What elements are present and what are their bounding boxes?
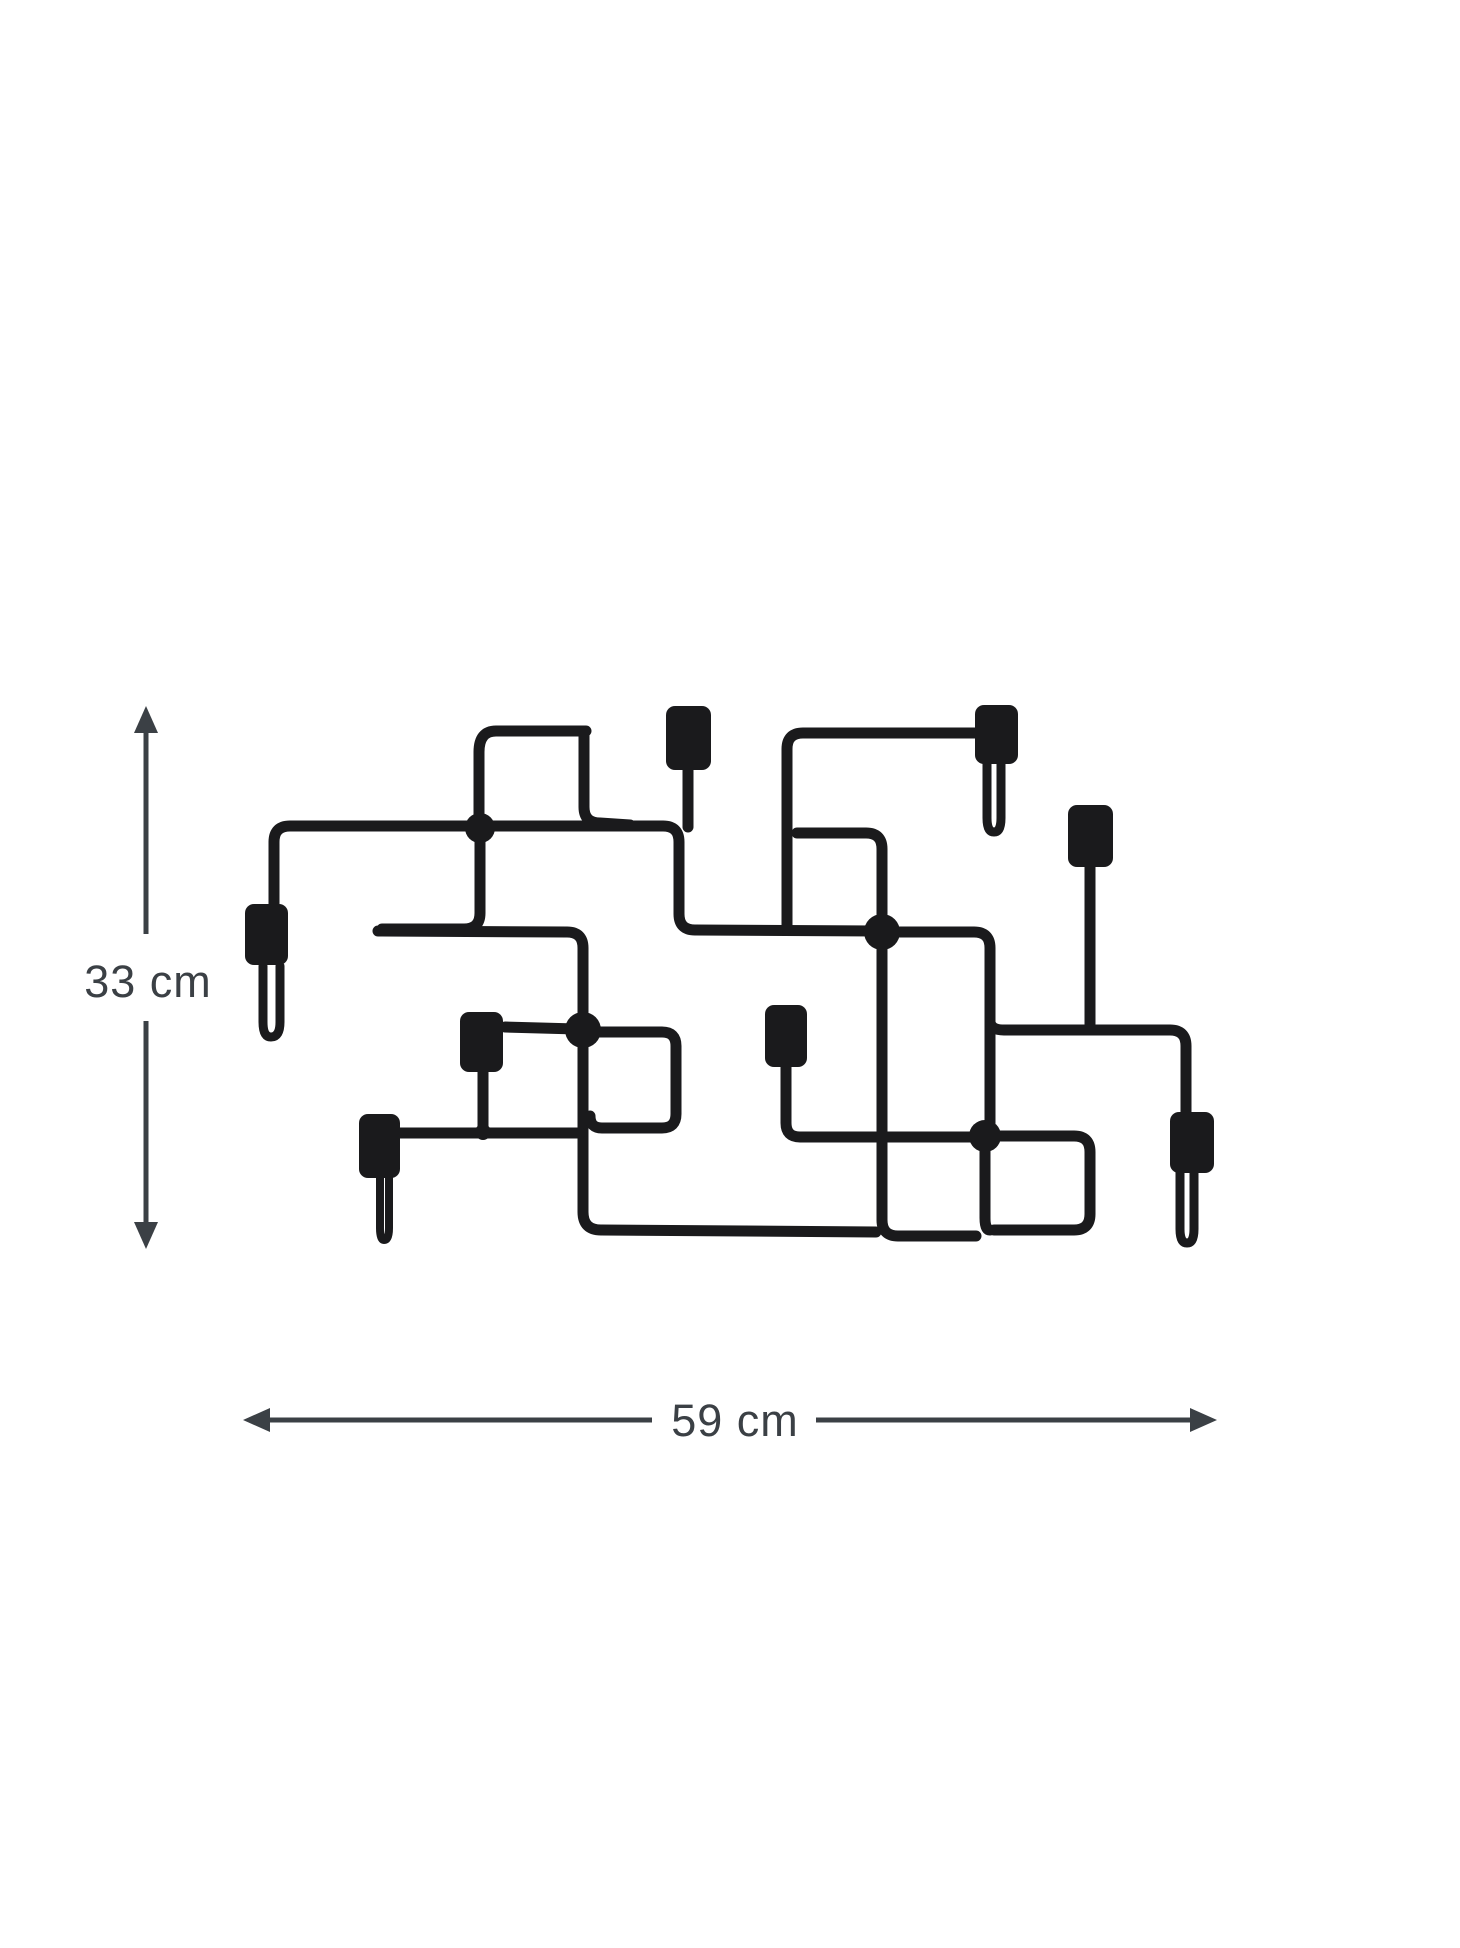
hook-pad bbox=[245, 904, 288, 965]
height-dimension-label: 33 cm bbox=[84, 956, 212, 1008]
wire-j1-up-loop bbox=[479, 731, 586, 830]
junction-dot bbox=[465, 813, 495, 843]
wire-j5-down bbox=[985, 1141, 990, 1230]
product-dimension-image: 33 cm 59 cm bbox=[0, 0, 1460, 1948]
weld-dot bbox=[475, 1124, 491, 1140]
hook-pad bbox=[765, 1005, 807, 1067]
wire-j2-square-top bbox=[797, 833, 882, 921]
coat-rack-hook-pads bbox=[245, 705, 1214, 1178]
hook-pad bbox=[460, 1012, 503, 1072]
coat-rack-diagram bbox=[0, 0, 1460, 1948]
wire-j5-right-loop bbox=[990, 1136, 1090, 1230]
wire-mid-to-j3 bbox=[378, 931, 583, 1022]
junction-dot bbox=[969, 1120, 1001, 1152]
hook-pad bbox=[1068, 805, 1113, 867]
hook-pad bbox=[359, 1114, 400, 1178]
wire-j2-down bbox=[882, 938, 976, 1236]
junction-dot bbox=[565, 1012, 601, 1048]
up-arrowhead-icon bbox=[134, 706, 158, 733]
junction-dot bbox=[864, 914, 900, 950]
wire-j2-to-j5 bbox=[888, 932, 990, 1128]
coat-rack-hook-loops bbox=[263, 763, 1194, 1243]
wire-j1-loop-drop bbox=[584, 734, 630, 825]
hook-loop-pad-d bbox=[263, 966, 280, 1037]
coat-rack-wires bbox=[274, 731, 1186, 1236]
hook-loop-pad-h bbox=[380, 1177, 389, 1240]
hook-loop-pad-b bbox=[987, 763, 1001, 832]
hook-pad bbox=[975, 705, 1018, 764]
left-arrowhead-icon bbox=[243, 1408, 270, 1432]
wire-j3-square-loop bbox=[589, 1032, 676, 1128]
coat-rack-junction-dots bbox=[465, 813, 1001, 1152]
width-dimension-label: 59 cm bbox=[671, 1395, 799, 1447]
down-arrowhead-icon bbox=[134, 1222, 158, 1249]
right-arrowhead-icon bbox=[1190, 1408, 1217, 1432]
hook-pad bbox=[666, 706, 711, 770]
hook-pad bbox=[1170, 1112, 1214, 1173]
hook-loop-pad-g bbox=[1180, 1172, 1194, 1243]
wire-branch-to-pad-g bbox=[990, 1022, 1186, 1112]
wire-j1-down-arm bbox=[382, 832, 480, 929]
